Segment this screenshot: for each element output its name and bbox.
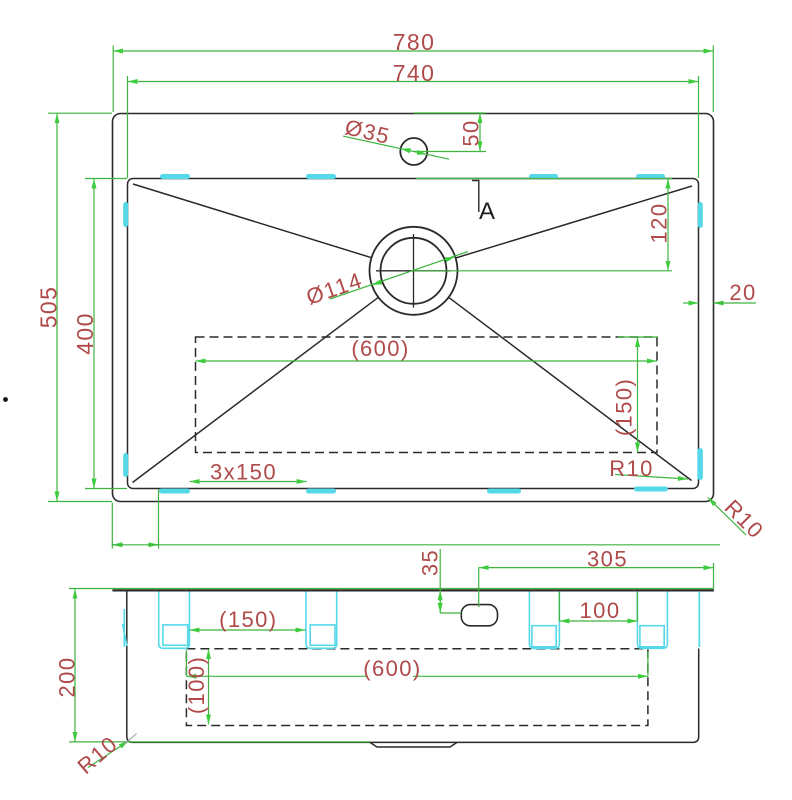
svg-text:305: 305 [587, 547, 628, 572]
svg-text:(600): (600) [363, 656, 421, 681]
svg-text:20: 20 [729, 280, 756, 305]
svg-text:50: 50 [459, 119, 484, 146]
svg-text:(600): (600) [351, 336, 409, 361]
svg-text:740: 740 [393, 60, 436, 86]
svg-text:100: 100 [580, 598, 621, 623]
svg-text:(150): (150) [612, 378, 637, 436]
svg-text:200: 200 [55, 657, 80, 698]
svg-text:(100): (100) [184, 656, 209, 714]
svg-text:(150): (150) [219, 607, 277, 632]
svg-text:35: 35 [418, 549, 443, 576]
svg-text:120: 120 [647, 203, 672, 244]
svg-text:400: 400 [72, 312, 98, 355]
svg-text:3x150: 3x150 [210, 460, 277, 485]
svg-text:505: 505 [36, 286, 62, 329]
svg-text:R10: R10 [609, 456, 654, 481]
svg-text:A: A [479, 198, 496, 225]
svg-text:780: 780 [393, 29, 436, 55]
